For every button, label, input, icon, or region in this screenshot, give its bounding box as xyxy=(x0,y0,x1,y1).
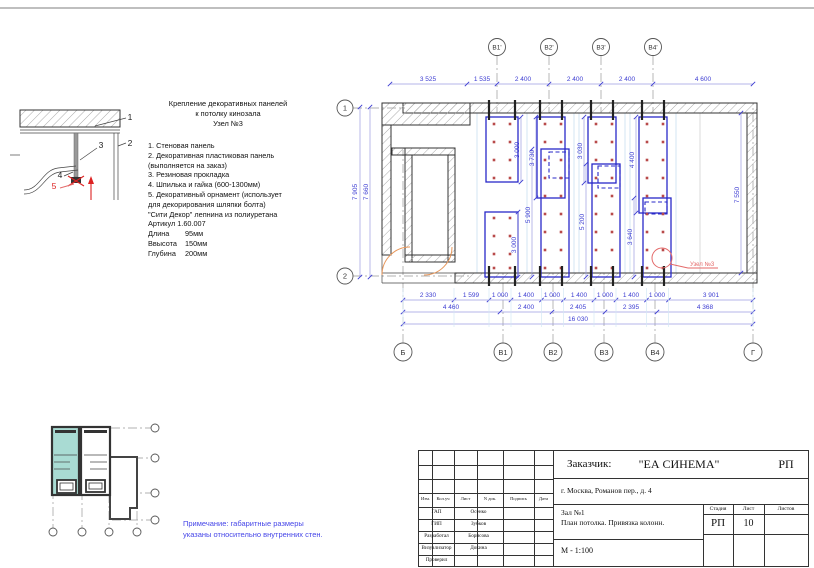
stage-label: Стадия xyxy=(703,506,733,512)
address: г. Москва, Романов пер., д. 4 xyxy=(561,486,652,495)
spec-row: Длина95мм xyxy=(148,229,348,239)
role-razrabotal: Разработал xyxy=(419,533,454,539)
dim-top-2: 2 400 xyxy=(515,76,532,83)
scale: М - 1:100 xyxy=(561,546,593,555)
dim-r1-9: 3 901 xyxy=(703,292,720,299)
detail-title-line1: Крепление декоративных панелей xyxy=(145,99,311,109)
axis-bot-2: В2 xyxy=(548,348,557,357)
col-list: Лист xyxy=(454,496,477,501)
dim-r1-2: 1 000 xyxy=(492,292,509,299)
object-line1: Зал №1 xyxy=(561,508,585,517)
col-ndok: N док. xyxy=(477,496,503,501)
axis-bubbles: В1' В2' В3' В4' Б В1 В2 В3 В4 Г 1 2 xyxy=(337,39,762,362)
list-item: "Сити Декор" лепнина из полиуретана xyxy=(148,210,348,220)
node-label: Узел №3 xyxy=(690,261,715,268)
role-vizualizator: Визуализатор xyxy=(419,545,454,551)
note-line1: Примечание: габаритные размеры xyxy=(183,518,323,529)
key-plan xyxy=(49,424,159,536)
dim-left-0: 7 905 xyxy=(352,183,359,200)
callout-4: 4 xyxy=(58,170,63,180)
dim-inner-3: 5 900 xyxy=(525,206,532,223)
callout-5: 5 xyxy=(52,181,57,191)
axis-bot-1: В1 xyxy=(498,348,507,357)
note-text: Примечание: габаритные размеры указаны о… xyxy=(183,518,323,540)
axis-top-2: В3' xyxy=(596,45,605,52)
name-gip: Зубков xyxy=(454,521,503,527)
spec-row: Ввысота150мм xyxy=(148,239,348,249)
spec-value: 150мм xyxy=(185,239,207,249)
spec-row: Глубина200мм xyxy=(148,249,348,259)
dim-top-1: 1 535 xyxy=(474,76,491,83)
dim-r1-1: 1 599 xyxy=(463,292,480,299)
detail-title-line3: Узел №3 xyxy=(145,119,311,129)
dim-inner-4: 3 030 xyxy=(577,142,584,159)
spec-label: Глубина xyxy=(148,249,185,259)
col-izm: Изм. xyxy=(419,496,432,501)
column-anchors xyxy=(489,100,664,286)
col-koluch: Кол.уч xyxy=(432,496,454,501)
sheets-label: Листов xyxy=(764,506,808,512)
dim-r1-3: 1 400 xyxy=(518,292,535,299)
callout-1: 1 xyxy=(128,112,133,122)
list-item: 1. Стеновая панель xyxy=(148,141,348,151)
dim-inner-7: 3 640 xyxy=(627,228,634,245)
customer-label: Заказчик: xyxy=(567,458,611,470)
dim-r2-0: 4 460 xyxy=(443,304,460,311)
dim-top-3: 2 400 xyxy=(567,76,584,83)
object-line2: План потолка. Привязка колонн. xyxy=(561,518,664,527)
dim-r2-3: 2 395 xyxy=(623,304,640,311)
dim-r1-8: 1 000 xyxy=(649,292,666,299)
dim-top-0: 3 525 xyxy=(420,76,437,83)
main-plan: Узел №3 3 525 1 535 2 400 2 400 2 400 4 … xyxy=(337,39,762,362)
axis-top-1: В2' xyxy=(544,45,553,52)
spec-value: 95мм xyxy=(185,229,203,239)
sheet-label: Лист xyxy=(733,506,764,512)
dim-inner-0: 3 000 xyxy=(514,141,521,158)
stage-value: РП xyxy=(703,517,733,529)
spec-label: Ввысота xyxy=(148,239,185,249)
detail-title-line2: к потолку кинозала xyxy=(145,109,311,119)
title-block: Изм. Кол.уч Лист N док. Подпись Дата ГАП… xyxy=(418,450,809,567)
role-gip: ГИП xyxy=(419,521,454,527)
dim-r1-5: 1 400 xyxy=(571,292,588,299)
col-podpis: Подпись xyxy=(503,496,534,501)
sheet-value: 10 xyxy=(733,518,764,529)
list-item: 2. Декоративная пластиковая панель xyxy=(148,151,348,161)
axis-bot-5: Г xyxy=(751,348,755,357)
dim-left-1: 7 660 xyxy=(363,183,370,200)
dim-top-4: 2 400 xyxy=(619,76,636,83)
dim-r1-7: 1 400 xyxy=(623,292,640,299)
list-item: 4. Шпилька и гайка (600-1300мм) xyxy=(148,180,348,190)
detail-title: Крепление декоративных панелей к потолку… xyxy=(145,99,311,129)
list-item: (выполняется на заказ) xyxy=(148,161,348,171)
spec-label: Длина xyxy=(148,229,185,239)
axis-bot-3: В3 xyxy=(599,348,608,357)
stage-top: РП xyxy=(767,457,805,472)
dim-inner-1: 3 000 xyxy=(511,236,518,253)
axis-left-1: 2 xyxy=(343,272,347,281)
name-razrabotal: Борисова xyxy=(454,533,503,539)
axis-bot-0: Б xyxy=(401,348,406,357)
name-vizualizator: Докина xyxy=(454,545,503,551)
drawing-sheet: { "detail": { "title": ["Крепление декор… xyxy=(0,0,814,568)
name-gap: Осенко xyxy=(454,509,503,515)
dim-right: 7 550 xyxy=(734,186,741,203)
axis-left-0: 1 xyxy=(343,104,347,113)
dim-r1-0: 2 330 xyxy=(420,292,437,299)
axis-top-3: В4' xyxy=(648,45,657,52)
role-gap: ГАП xyxy=(419,509,454,515)
dim-r1-4: 1 000 xyxy=(544,292,561,299)
dim-r2-1: 2 400 xyxy=(518,304,535,311)
list-item: для декорирования шляпки болта) xyxy=(148,200,348,210)
callout-3: 3 xyxy=(99,140,104,150)
role-proveril: Проверил xyxy=(419,557,454,563)
dim-inner-5: 5 200 xyxy=(579,213,586,230)
dim-inner-2: 3 730 xyxy=(529,149,536,166)
list-item: Артикул 1.60.007 xyxy=(148,219,348,229)
detail-notes-list: 1. Стеновая панель 2. Декоративная пласт… xyxy=(148,141,348,259)
list-item: 5. Декоративный орнамент (использует xyxy=(148,190,348,200)
dim-r2-2: 2 405 xyxy=(570,304,587,311)
nut-ornament xyxy=(71,177,81,183)
callout-2: 2 xyxy=(128,138,133,148)
note-line2: указаны относительно внутренних стен. xyxy=(183,529,323,540)
list-item: 3. Резиновая прокладка xyxy=(148,170,348,180)
customer-name: "ЕА СИНЕМА" xyxy=(619,457,739,472)
dim-inner-6: 4 400 xyxy=(629,151,636,168)
col-data: Дата xyxy=(534,496,553,501)
axis-bot-4: В4 xyxy=(650,348,659,357)
dim-r1-6: 1 000 xyxy=(597,292,614,299)
dim-total: 16 030 xyxy=(568,316,588,323)
detail-sketch: 1 2 3 4 5 xyxy=(10,110,133,200)
dim-top-5: 4 600 xyxy=(695,76,712,83)
axis-top-0: В1' xyxy=(492,45,501,52)
dim-r2-4: 4 368 xyxy=(697,304,714,311)
spec-value: 200мм xyxy=(185,249,207,259)
